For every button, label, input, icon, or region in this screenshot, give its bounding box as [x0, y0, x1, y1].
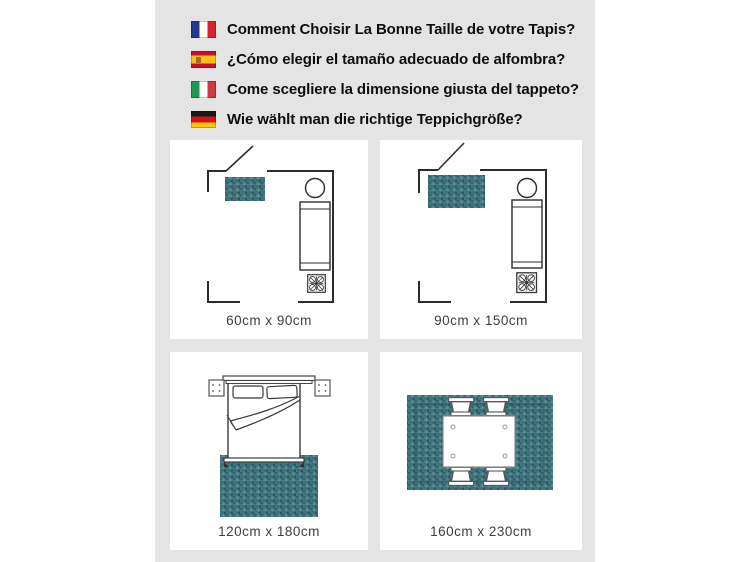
size-card-90x150: 90cm x 150cm	[380, 140, 582, 339]
sofa	[512, 200, 542, 268]
side-table	[306, 179, 325, 198]
dining-chair-top-left	[449, 398, 474, 416]
potted-plant	[308, 275, 326, 293]
rug-size-label: 120cm x 180cm	[170, 524, 368, 539]
footboard	[224, 458, 304, 462]
side-table	[518, 179, 537, 198]
dining-chair-top-right	[484, 398, 509, 416]
flag-italy-icon	[191, 81, 216, 98]
dining-chair-bottom-left	[449, 467, 474, 485]
flag-france-icon	[191, 21, 216, 38]
bed	[223, 376, 315, 467]
floorplan-90x150-illustration	[380, 140, 582, 312]
spain-crest-icon	[196, 57, 201, 63]
door-swing-line	[438, 143, 464, 170]
rug-60x90	[225, 177, 265, 201]
bedroom-120x180-illustration	[170, 352, 368, 524]
header-question-french: Comment Choisir La Bonne Taille de votre…	[227, 21, 575, 38]
header-row-german: Wie wählt man die richtige Teppichgröße?	[191, 110, 523, 128]
door-swing-line	[226, 146, 253, 171]
size-card-160x230: 160cm x 230cm	[380, 352, 582, 550]
floorplan-60x90-illustration	[170, 140, 368, 312]
flag-spain-icon	[191, 51, 216, 68]
header-question-spanish: ¿Cómo elegir el tamaño adecuado de alfom…	[227, 51, 565, 68]
header-row-spanish: ¿Cómo elegir el tamaño adecuado de alfom…	[191, 50, 565, 68]
rug-size-label: 90cm x 150cm	[380, 313, 582, 328]
header-row-italian: Come scegliere la dimensione giusta del …	[191, 80, 579, 98]
rug-90x150	[428, 175, 485, 208]
nightstand-left	[209, 380, 224, 396]
flag-germany-icon	[191, 111, 216, 128]
pillow-left	[233, 386, 263, 398]
headboard	[223, 376, 315, 381]
pillow-right	[267, 385, 298, 399]
headboard-trim	[226, 381, 312, 384]
size-card-120x180: 120cm x 180cm	[170, 352, 368, 550]
nightstand-right	[315, 380, 330, 396]
dining-chair-bottom-right	[484, 467, 509, 485]
rug-size-label: 60cm x 90cm	[170, 313, 368, 328]
potted-plant	[517, 273, 537, 293]
header-question-italian: Come scegliere la dimensione giusta del …	[227, 81, 579, 98]
header-row-french: Comment Choisir La Bonne Taille de votre…	[191, 20, 575, 38]
dining-160x230-illustration	[380, 352, 582, 524]
header-question-german: Wie wählt man die richtige Teppichgröße?	[227, 111, 523, 128]
sofa	[300, 202, 330, 270]
dining-table	[443, 416, 515, 467]
size-card-60x90: 60cm x 90cm	[170, 140, 368, 339]
rug-size-label: 160cm x 230cm	[380, 524, 582, 539]
